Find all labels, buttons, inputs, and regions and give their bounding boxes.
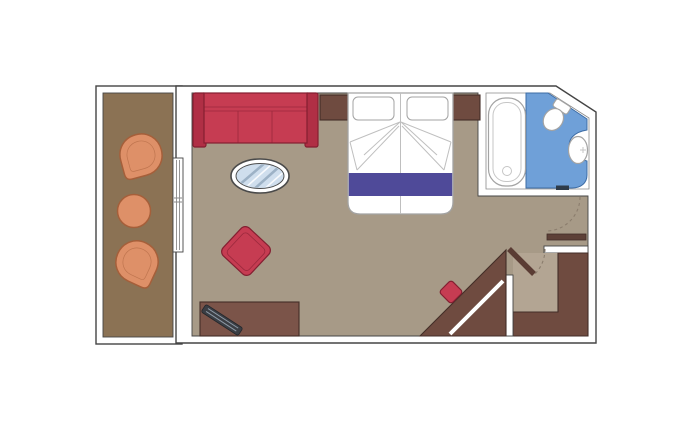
bathroom-threshold <box>556 186 569 191</box>
floor-plan-svg <box>0 0 700 433</box>
nightstand-left <box>320 95 348 120</box>
sofa <box>193 93 318 147</box>
balcony-door-frame <box>173 158 183 252</box>
bathtub <box>489 98 526 186</box>
bed-runner <box>349 173 452 196</box>
vestibule-wall <box>506 275 513 336</box>
desk-area <box>200 302 299 336</box>
bed-pillow-left <box>353 97 394 120</box>
balcony-door-window <box>173 158 183 252</box>
floor-plan <box>0 0 700 433</box>
balcony-table <box>118 195 151 228</box>
wall-stub <box>544 246 588 253</box>
nightstand-right <box>452 95 480 120</box>
bed-pillow-right <box>407 97 448 120</box>
double-bed <box>348 93 453 214</box>
sofa-body <box>204 93 307 143</box>
sink <box>569 137 588 164</box>
closet-top-bar <box>547 234 586 240</box>
